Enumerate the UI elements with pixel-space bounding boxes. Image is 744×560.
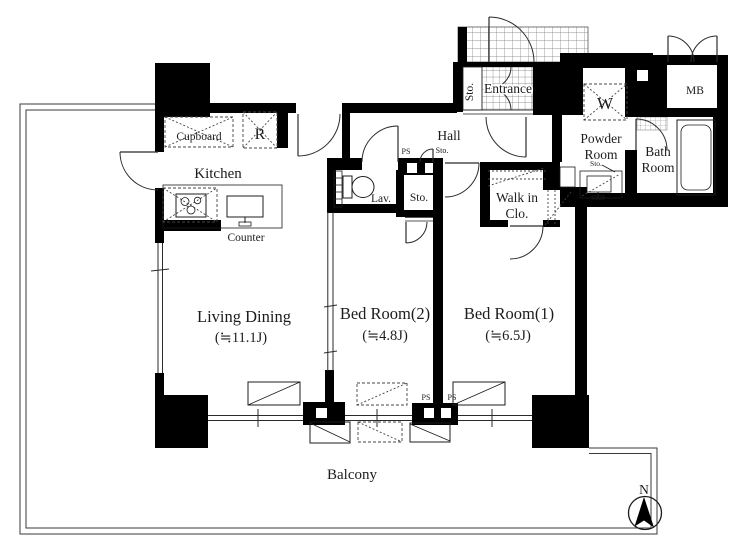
hall-label: Hall [437, 128, 460, 143]
hall-ps-label: PS [402, 147, 411, 156]
bath-room-label-2: Room [641, 160, 675, 175]
refrigerator-label: R [255, 126, 266, 143]
floor-plan-svg: Cupboard R Kitchen Counter Entrance Sto.… [0, 0, 744, 560]
powder-sto-label: Sto. [590, 159, 602, 168]
floor-plan-page: Cupboard R Kitchen Counter Entrance Sto.… [0, 0, 744, 560]
kitchen-label: Kitchen [194, 166, 242, 182]
wic-label-1: Walk in [496, 190, 538, 205]
balcony-label: Balcony [327, 467, 377, 483]
bed-room-2-label: Bed Room(2) [340, 304, 430, 323]
powder-room-label-1: Powder [580, 131, 622, 146]
bath-room-label-1: Bath [645, 144, 671, 159]
hall-sto-label: Sto. [436, 146, 449, 155]
bottom-ps-left-label: PS [422, 393, 431, 402]
entrance-sto-label: Sto. [464, 83, 476, 101]
counter-label: Counter [227, 232, 264, 244]
washer-label: W [597, 94, 614, 113]
cupboard-label: Cupboard [176, 131, 222, 143]
wic-label-2: Clo. [506, 206, 529, 221]
bed2-sto-label: Sto. [410, 192, 428, 204]
compass-n-label: N [639, 482, 649, 497]
lavatory-label: Lav. [371, 193, 391, 205]
bed-room-1-label: Bed Room(1) [464, 304, 554, 323]
bottom-ps-right-label: PS [448, 393, 457, 402]
entrance-label: Entrance [484, 81, 532, 96]
living-dining-label: Living Dining [197, 307, 291, 326]
living-dining-size: (≒11.1J) [215, 330, 267, 346]
meter-box-label: MB [686, 85, 704, 97]
bed-room-1-size: (≒6.5J) [485, 328, 531, 344]
bed-room-2-size: (≒4.8J) [362, 328, 408, 344]
